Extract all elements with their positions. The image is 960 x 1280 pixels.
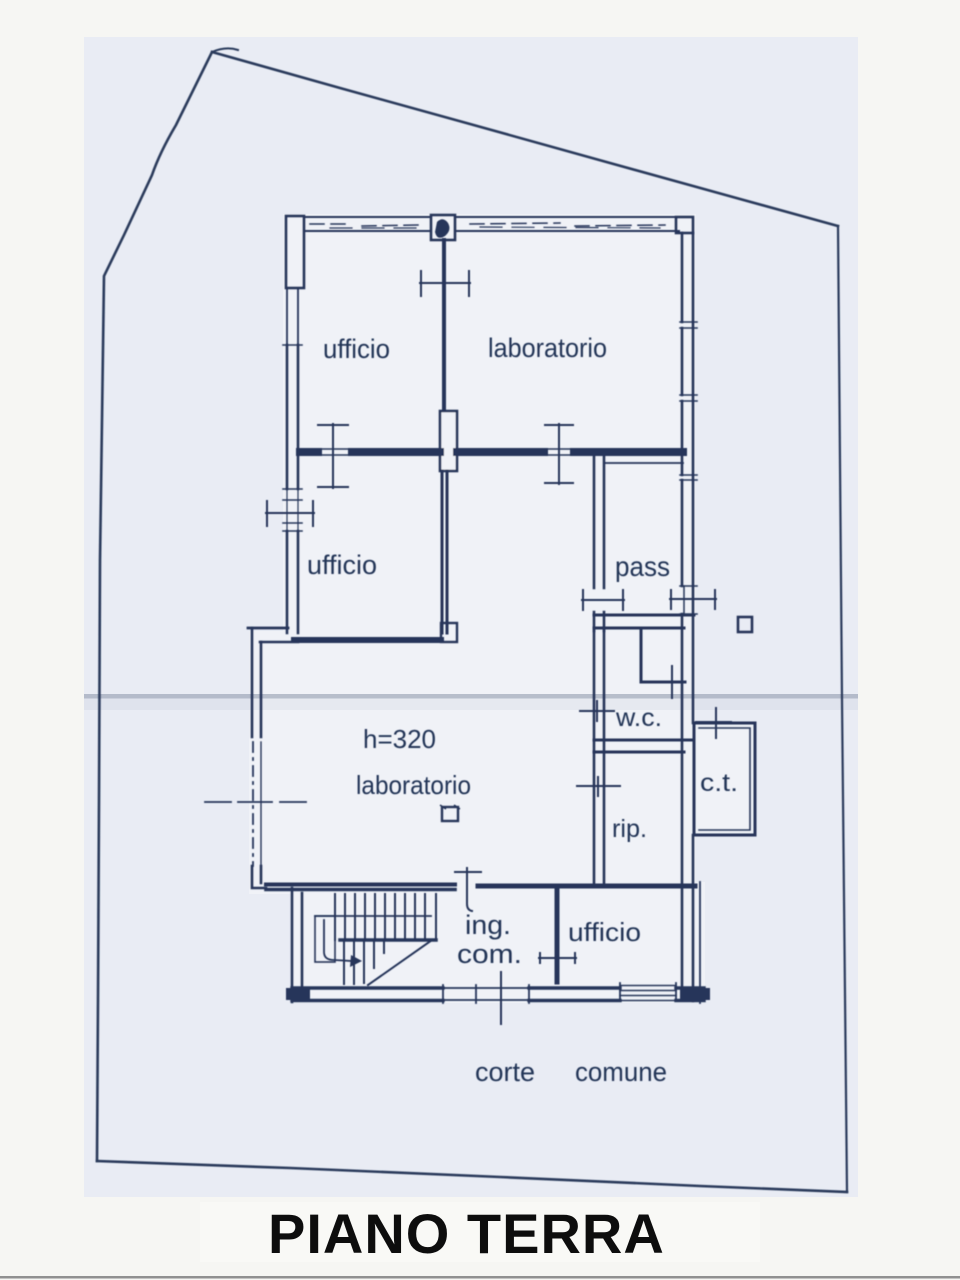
svg-text:w.c.: w.c.: [615, 704, 662, 732]
svg-text:corte: corte: [475, 1057, 535, 1087]
svg-text:ufficio: ufficio: [323, 334, 390, 364]
svg-text:c.t.: c.t.: [700, 769, 738, 797]
svg-text:ufficio: ufficio: [568, 917, 641, 947]
svg-text:comune: comune: [575, 1057, 667, 1087]
svg-text:PIANO TERRA: PIANO TERRA: [268, 1202, 665, 1265]
svg-text:com.: com.: [457, 939, 522, 969]
svg-text:ufficio: ufficio: [307, 550, 377, 580]
svg-text:pass: pass: [615, 551, 670, 582]
svg-text:laboratorio: laboratorio: [356, 770, 471, 800]
svg-text:laboratorio: laboratorio: [488, 333, 607, 363]
svg-text:ing.: ing.: [465, 910, 511, 940]
svg-text:h=320: h=320: [363, 724, 436, 754]
svg-text:rip.: rip.: [612, 815, 647, 843]
